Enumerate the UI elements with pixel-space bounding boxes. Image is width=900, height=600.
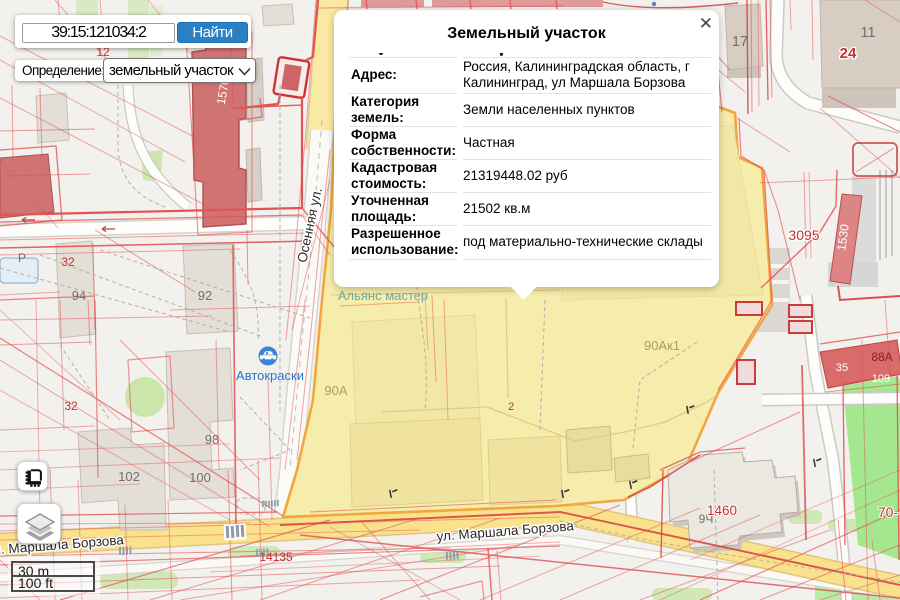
svg-text:90Ак1: 90Ак1 xyxy=(644,338,680,353)
svg-text:2: 2 xyxy=(508,401,514,413)
svg-text:94: 94 xyxy=(72,288,86,303)
svg-text:88А: 88А xyxy=(871,350,892,364)
svg-text:98: 98 xyxy=(205,432,219,447)
svg-text:92: 92 xyxy=(198,288,212,303)
svg-text:70-: 70- xyxy=(878,504,899,520)
svg-text:Автокраски: Автокраски xyxy=(236,368,304,383)
svg-text:32: 32 xyxy=(64,399,78,413)
svg-text:100: 100 xyxy=(189,470,211,485)
svg-text:14135: 14135 xyxy=(259,550,293,564)
svg-text:109: 109 xyxy=(872,373,890,385)
svg-text:90А: 90А xyxy=(324,383,347,398)
svg-text:Р: Р xyxy=(18,251,26,265)
svg-text:102: 102 xyxy=(118,469,140,484)
svg-text:1460: 1460 xyxy=(707,503,737,518)
svg-text:24: 24 xyxy=(840,45,857,62)
svg-text:11: 11 xyxy=(860,25,875,41)
svg-text:Альянс мастер: Альянс мастер xyxy=(338,288,428,303)
svg-text:17: 17 xyxy=(732,34,748,50)
svg-text:35: 35 xyxy=(836,362,848,374)
svg-text:3095: 3095 xyxy=(788,227,819,243)
